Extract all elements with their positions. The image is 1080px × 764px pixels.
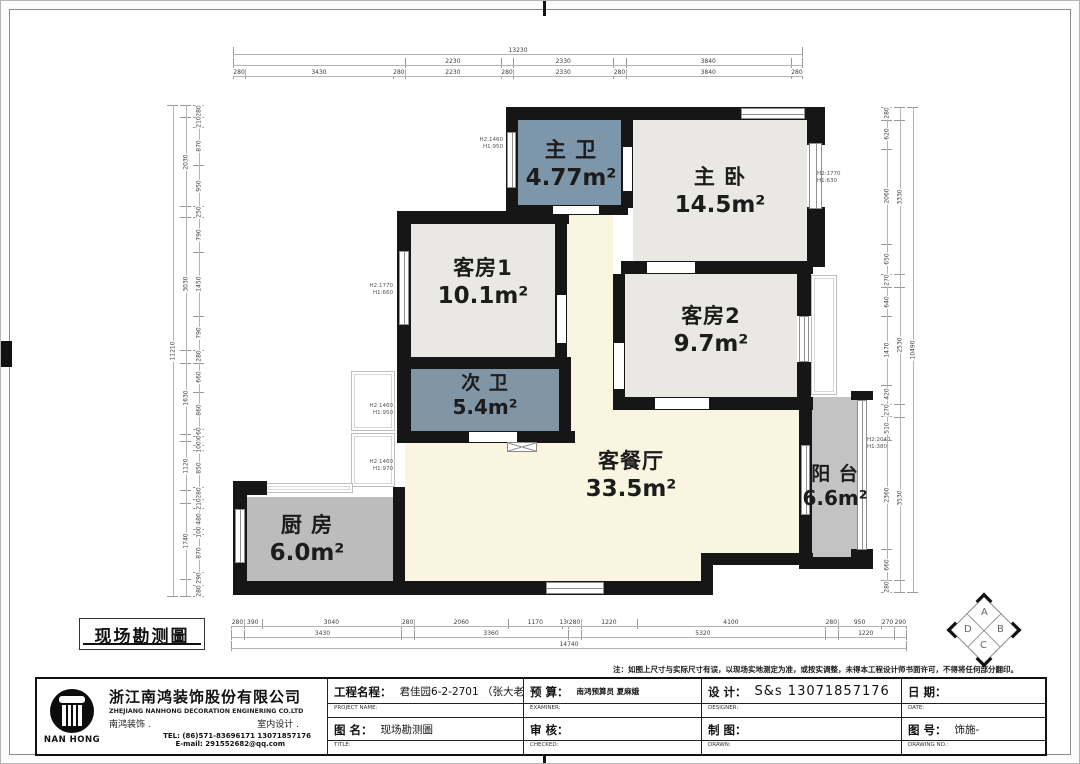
dim-segment: 870 <box>193 534 204 572</box>
dim-segment <box>501 58 513 68</box>
corridor-window-upper <box>351 371 395 431</box>
dim-segment: 290 <box>193 572 204 585</box>
door-opening <box>655 398 709 409</box>
dim-segment: 870 <box>193 127 204 165</box>
dim-col-left-mid: 20303030163011201740 <box>180 105 191 597</box>
logo-caption: NAN HONG <box>43 735 101 745</box>
nanhong-column-logo-icon <box>50 689 94 733</box>
dim-segment: 270 <box>881 404 892 417</box>
title-block: NAN HONG 浙江南鸿装饰股份有限公司 ZHEJIANG NANHONG D… <box>35 677 1047 756</box>
door-opening <box>647 262 695 273</box>
dim-segment: 3330 <box>894 120 905 274</box>
dim-segment: 280 <box>401 619 414 629</box>
dim-col-right-detail: 2806202060650270640147042027051023606602… <box>881 107 892 593</box>
dim-segment: 2330 <box>513 58 613 68</box>
dim-segment: 3840 <box>626 58 791 68</box>
dim-col-right-overall: 10490 <box>907 107 918 593</box>
window <box>399 251 409 325</box>
dim-segment: 3360 <box>414 630 568 640</box>
dim-segment: 790 <box>193 316 204 351</box>
dim-segment: 270 <box>881 274 892 287</box>
room-label-master-bedroom: 主 卧 14.5m² <box>650 165 790 219</box>
field-drawing-name: 图 名： 现场勘测圖 <box>327 717 523 740</box>
dim-segment: 1220 <box>581 619 637 629</box>
room-label-master-bath: 主 卫 4.77m² <box>501 138 641 192</box>
dim-segment: 790 <box>193 217 204 252</box>
field-designer: 设 计： S&s 13071857176 <box>701 679 901 703</box>
dim-segment <box>825 630 838 640</box>
dim-segment: 4100 <box>637 619 825 629</box>
wall-segment <box>397 357 571 369</box>
dim-segment: 280 <box>825 619 838 629</box>
dim-segment <box>401 630 414 640</box>
company-name-en: ZHEJIANG NANHONG DECORATION ENGINERING C… <box>109 708 325 715</box>
caption-drawing-no: DRAWING NO.: <box>901 740 1045 754</box>
disclaimer-note: 注：如图上尺寸与实际尺寸有误，以现场实地测定为准，或按实调整，未得本工程设计师书… <box>613 664 1049 675</box>
dim-segment: 280 <box>233 69 245 79</box>
dim-segment <box>613 58 625 68</box>
dim-segment <box>894 630 907 640</box>
dim-segment: 280 <box>881 107 892 120</box>
survey-drawing-page: 主 卫 4.77m² 主 卧 14.5m² 客房1 10.1m² 客房2 9.7… <box>0 0 1080 764</box>
company-sub1: 南鸿装饰 . <box>109 717 151 730</box>
dim-segment: 660 <box>193 363 204 392</box>
dim-segment <box>180 206 191 217</box>
wall-segment <box>807 207 825 267</box>
company-cell: NAN HONG 浙江南鸿装饰股份有限公司 ZHEJIANG NANHONG D… <box>37 679 327 754</box>
dim-segment: 10490 <box>907 107 918 593</box>
field-budget: 预 算： 南鸿预算员 夏麻娥 <box>523 679 701 703</box>
dim-row-top-overall: 13230 <box>233 47 803 57</box>
field-drawn: 制 图： <box>701 717 901 740</box>
dim-segment: 3040 <box>262 619 401 629</box>
dim-segment: 2060 <box>881 149 892 244</box>
window <box>741 108 805 119</box>
dim-segment: 620 <box>881 120 892 149</box>
dim-segment: 1450 <box>193 252 204 316</box>
dim-segment <box>894 580 905 593</box>
entry-door-opening <box>546 582 604 594</box>
dim-segment: 510 <box>881 416 892 440</box>
dim-row-top-mid: 223023303840 <box>233 58 803 68</box>
dim-segment: 280 <box>613 69 625 79</box>
wall-segment <box>797 274 811 316</box>
frame-center-mark-top <box>543 1 546 16</box>
company-sub2: 室内设计 . <box>257 717 299 730</box>
room-label-kitchen: 厨 房 6.0m² <box>237 513 377 567</box>
dim-segment <box>894 404 905 417</box>
door-opening <box>614 343 624 389</box>
dim-segment: 950 <box>193 165 204 207</box>
window-height-label: H2:1460H1:950 <box>357 403 393 416</box>
dim-segment: 420 <box>881 385 892 404</box>
window-height-label: H2:1770H1:630 <box>817 171 853 184</box>
compass-letter-d: D <box>964 624 972 635</box>
dim-segment: 1470 <box>881 316 892 384</box>
dim-row-bottom-mid: 3430336053201220 <box>231 630 907 640</box>
dim-segment: 650 <box>881 244 892 274</box>
dim-segment: 280 <box>881 580 892 593</box>
plan-title-box: 现场勘测圖 <box>79 618 205 650</box>
dim-segment: 390 <box>244 619 262 629</box>
wall-segment <box>397 211 569 224</box>
dim-segment <box>894 274 905 287</box>
company-name-cn: 浙江南鸿装饰股份有限公司 <box>109 686 325 707</box>
dim-segment: 850 <box>193 450 204 487</box>
dim-segment: 290 <box>894 619 907 629</box>
door-opening <box>553 206 599 214</box>
dim-segment: 280 <box>393 69 405 79</box>
dim-segment: 1630 <box>180 363 191 435</box>
caption-project-name: PROJECT NAME: <box>327 703 523 717</box>
wall-segment <box>559 369 571 431</box>
dim-segment <box>231 630 244 640</box>
dim-segment: 13230 <box>233 47 803 57</box>
dim-segment <box>894 107 905 120</box>
dim-segment: 2060 <box>414 619 508 629</box>
dim-segment: 2030 <box>180 117 191 206</box>
dim-segment: 2360 <box>881 440 892 549</box>
dim-segment: 2330 <box>513 69 613 79</box>
dim-segment: 5320 <box>581 630 825 640</box>
dim-segment: 1120 <box>180 441 191 490</box>
dim-col-left-detail: 2802108709502507901450790280660860160200… <box>193 105 204 597</box>
field-project-name: 工程名程： 君佳园6-2-2701 （张大老板娘） <box>327 679 523 703</box>
dim-segment: 270 <box>881 619 893 629</box>
dim-segment: 280 <box>568 619 581 629</box>
dim-segment: 2230 <box>405 69 501 79</box>
dim-segment: 280 <box>193 585 204 597</box>
dim-segment: 100 <box>193 529 204 533</box>
dim-col-left-overall: 11210 <box>167 105 178 597</box>
dim-segment: 11210 <box>167 105 178 597</box>
dim-segment: 3530 <box>894 417 905 581</box>
dim-segment: 1220 <box>838 630 894 640</box>
dim-segment: 14740 <box>231 641 907 651</box>
field-checked: 审 核： <box>523 717 701 740</box>
dim-segment: 3430 <box>245 69 393 79</box>
dim-segment <box>180 434 191 441</box>
window-height-label: H2:1460H1:950 <box>467 137 503 150</box>
dim-segment: 860 <box>193 392 204 430</box>
wall-segment <box>851 391 873 400</box>
dim-segment: 100 <box>193 445 204 449</box>
dim-segment: 640 <box>881 287 892 317</box>
wall-segment <box>233 581 403 595</box>
dim-segment <box>180 105 191 117</box>
wall-segment <box>701 553 813 565</box>
caption-designer: DESIGNER: <box>701 703 901 717</box>
compass-letter-b: B <box>997 624 1004 635</box>
dim-segment: 660 <box>881 549 892 580</box>
frame-center-mark-left <box>1 341 12 367</box>
wall-segment <box>233 481 267 495</box>
caption-examiner: EXAMINER: <box>523 703 701 717</box>
dim-segment <box>791 58 803 68</box>
field-date: 日 期： <box>901 679 1045 703</box>
dim-segment: 210 <box>193 117 204 126</box>
room-label-guest1: 客房1 10.1m² <box>413 256 553 310</box>
caption-date: DATE: <box>901 703 1045 717</box>
dim-segment <box>180 579 191 597</box>
company-logo: NAN HONG <box>43 689 101 745</box>
window-height-label: H2:1770H1:660 <box>357 283 393 296</box>
company-tel: TEL: (86)571-83696171 13071857176 <box>109 732 325 740</box>
caption-drawn: DRAWN: <box>701 740 901 754</box>
flue-x-icon <box>507 442 537 452</box>
dim-segment <box>568 630 581 640</box>
dim-segment <box>180 490 191 502</box>
caption-title: TITLE: <box>327 740 523 754</box>
field-drawing-no: 图 号： 饰施- <box>901 717 1045 740</box>
dim-segment: 280 <box>231 619 244 629</box>
wall-segment <box>555 224 567 364</box>
balcony-upper-glazing <box>811 275 837 395</box>
dim-col-right-mid: 333025303530 <box>894 107 905 593</box>
dim-segment: 280 <box>193 350 204 362</box>
dim-segment: 3030 <box>180 217 191 350</box>
plan-title-underline <box>83 643 201 645</box>
company-email: E-mail: 291552682@qq.com <box>109 740 325 748</box>
dim-segment: 2230 <box>405 58 501 68</box>
dim-segment: 950 <box>838 619 882 629</box>
wall-segment <box>807 107 825 145</box>
dim-segment: 250 <box>193 206 204 217</box>
dim-segment: 3430 <box>244 630 401 640</box>
wall-segment <box>613 397 813 410</box>
dim-row-bottom-detail: 2803903040280206011701302801220410028095… <box>231 619 907 629</box>
dim-segment <box>180 350 191 362</box>
dim-row-top-detail: 2803430280223028023302803840280 <box>233 69 803 79</box>
caption-checked: CHECKED: <box>523 740 701 754</box>
room-label-guest2: 客房2 9.7m² <box>641 304 781 358</box>
wall-segment <box>797 362 811 398</box>
room-label-living: 客餐厅 33.5m² <box>561 449 701 503</box>
dim-segment: 1740 <box>180 503 191 579</box>
orientation-compass-icon: A B C D <box>949 595 1019 665</box>
dim-segment: 210 <box>193 499 204 508</box>
window <box>799 316 809 362</box>
room-label-second-bath: 次 卫 5.4m² <box>415 372 555 420</box>
dim-segment: 1170 <box>508 619 562 629</box>
door-opening <box>557 295 566 343</box>
room-living-corridor <box>567 213 613 443</box>
kitchen-top-partition <box>265 483 353 493</box>
dim-segment: 2530 <box>894 287 905 404</box>
window-height-label: H2:1460H1:970 <box>357 459 393 472</box>
door-opening <box>469 432 517 442</box>
dim-segment: 280 <box>501 69 513 79</box>
dim-segment: 280 <box>791 69 803 79</box>
dim-row-bottom-overall: 14740 <box>231 641 907 651</box>
dim-segment: 3840 <box>626 69 791 79</box>
wall-segment <box>393 487 405 593</box>
dim-segment <box>233 58 405 68</box>
